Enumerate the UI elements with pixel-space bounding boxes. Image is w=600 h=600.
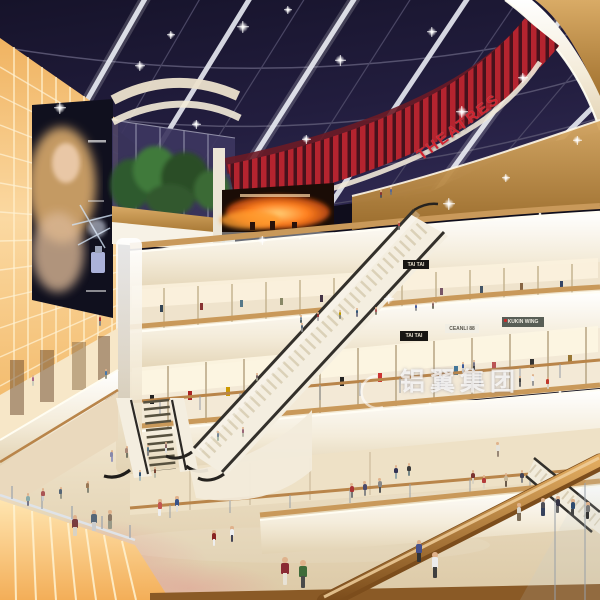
watermark-text: 铝翼集团 [400,362,520,398]
store-sign-tai-tai-lower: TAI TAI [400,331,428,341]
store-sign-tai-tai-upper: TAI TAI [403,260,429,269]
perfume-ad-billboard [28,99,113,318]
scene-art [0,0,600,600]
store-sign-ceanli: CEANLI 88 [445,324,479,333]
store-sign-kukin-wing: KUKIN WING [502,317,544,327]
mall-atrium-rendering: THEATRES TAI TAI TAI TAI CEANLI 88 KUKIN… [0,0,600,600]
